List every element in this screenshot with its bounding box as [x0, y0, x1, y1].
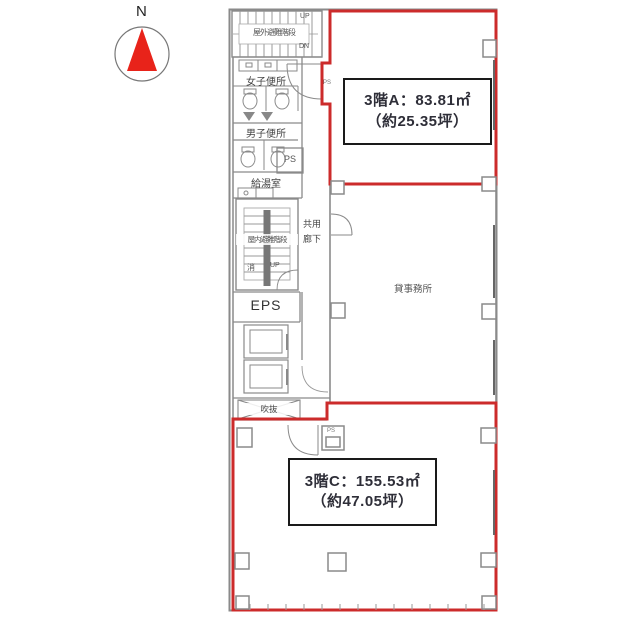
unit-a-label-box: 3階A：83.81㎡ （約25.35坪）	[343, 78, 492, 145]
floor-plan-page: N	[0, 0, 630, 630]
ps-tiny-c-label: PS	[327, 428, 335, 434]
void-label: 吹抜	[244, 403, 294, 415]
eps-label: EPS	[233, 297, 299, 313]
indoor-stair-label: 屋内避難階段	[236, 234, 298, 245]
unit-c-label-box: 3階C：155.53㎡ （約47.05坪）	[288, 458, 437, 526]
outdoor-stair-up-label: UP	[300, 13, 310, 20]
corridor-label-line2: 廊下	[303, 232, 321, 245]
womens-toilet-label: 女子便所	[233, 73, 299, 88]
office-label: 貸事務所	[330, 281, 496, 295]
outdoor-stair-dn-label: DN	[299, 43, 309, 50]
indoor-stair-up-label: UP	[270, 262, 280, 269]
unit-a-tsubo: （約25.35坪）	[366, 112, 468, 132]
ps-label: PS	[277, 154, 303, 164]
elevators	[244, 325, 328, 393]
ps-tiny-a-label: PS	[323, 80, 331, 86]
unit-a-area: 3階A：83.81㎡	[364, 91, 471, 111]
unit-c-area: 3階C：155.53㎡	[305, 472, 421, 492]
womens-toilet-fixtures	[233, 60, 298, 121]
floor-plan-drawing	[0, 0, 630, 630]
unit-c-tsubo: （約47.05坪）	[311, 492, 413, 512]
kitchenette-label: 給湯室	[233, 175, 299, 190]
mens-toilet-label: 男子便所	[233, 125, 299, 140]
indoor-stair-fire-label: 消	[247, 262, 255, 273]
corridor-label-line1: 共用	[303, 217, 321, 230]
outdoor-stair-label: 屋外避難階段	[240, 27, 308, 38]
